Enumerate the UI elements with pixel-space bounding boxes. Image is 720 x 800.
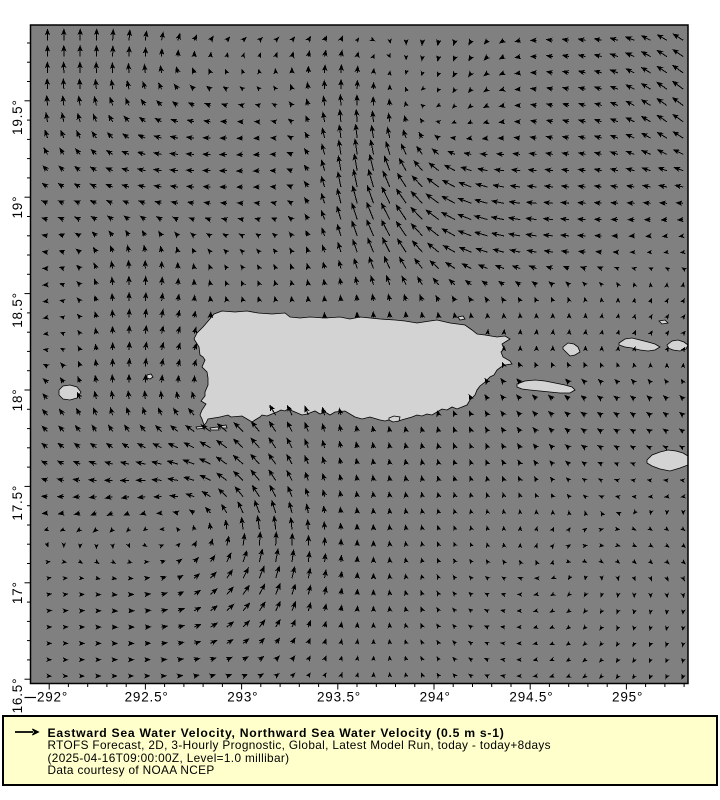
svg-text:18.5°: 18.5° — [10, 292, 25, 328]
svg-text:294°: 294° — [420, 690, 451, 705]
svg-text:293.5°: 293.5° — [317, 690, 361, 705]
svg-text:293°: 293° — [227, 690, 258, 705]
svg-text:294.5°: 294.5° — [509, 690, 553, 705]
svg-text:292°: 292° — [37, 690, 68, 705]
svg-text:19°: 19° — [10, 196, 25, 219]
svg-text:295°: 295° — [612, 690, 643, 705]
svg-text:16.5°: 16.5° — [10, 678, 25, 714]
svg-text:17°: 17° — [10, 581, 25, 604]
svg-text:292.5°: 292.5° — [125, 690, 169, 705]
svg-text:18°: 18° — [10, 389, 25, 412]
svg-text:17.5°: 17.5° — [10, 485, 25, 521]
svg-text:19.5°: 19.5° — [10, 99, 25, 135]
